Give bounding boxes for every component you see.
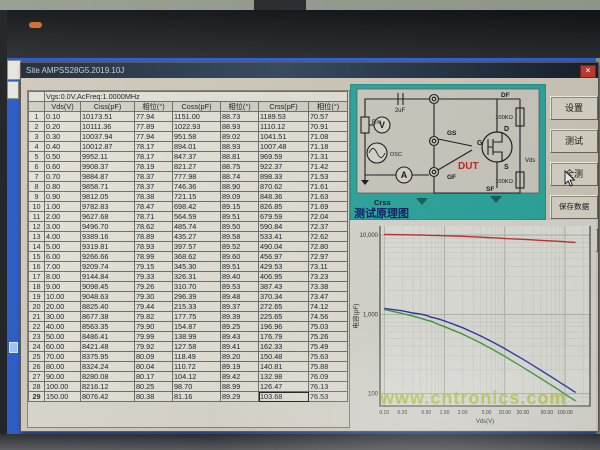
table-row: 101.009782.8378.47698.4289.15826.8571.69: [29, 202, 348, 212]
cell[interactable]: 1110.12: [259, 122, 309, 132]
cell[interactable]: 118.49: [173, 352, 221, 362]
cell[interactable]: 9908.37: [81, 162, 135, 172]
cell[interactable]: 8825.40: [81, 302, 135, 312]
table-row: 50.509952.1178.17847.3788.81969.5971.31: [29, 152, 348, 162]
background-window-fragment: [7, 60, 21, 80]
cell[interactable]: 71.31: [309, 152, 348, 162]
table-row: 134.009389.1678.89435.2789.58533.4172.62: [29, 232, 348, 242]
cell[interactable]: 80.00: [45, 362, 81, 372]
cell[interactable]: 9812.05: [81, 192, 135, 202]
mosfet-icon: [482, 132, 512, 162]
cell[interactable]: 60.00: [45, 342, 81, 352]
cell[interactable]: 89.50: [221, 222, 259, 232]
cell[interactable]: 10.00: [45, 292, 81, 302]
cell[interactable]: 8324.24: [81, 362, 135, 372]
cell[interactable]: 0.30: [45, 132, 81, 142]
cell[interactable]: 296.39: [173, 292, 221, 302]
settings-button[interactable]: 设置: [550, 96, 598, 120]
desktop-icon: [9, 342, 18, 353]
y-tick-label: 10,000: [360, 233, 379, 239]
cell[interactable]: 89.58: [221, 232, 259, 242]
window-content: Vgs:0.0V,AcFreq:1.0000MHz Vds(V) Ciss(pF…: [21, 78, 598, 431]
cell[interactable]: 73.23: [309, 272, 348, 282]
cell[interactable]: 98.70: [173, 382, 221, 392]
cell[interactable]: 9858.71: [81, 182, 135, 192]
cell[interactable]: 70.91: [309, 122, 348, 132]
cell[interactable]: 72.62: [309, 232, 348, 242]
cell[interactable]: 9209.74: [81, 262, 135, 272]
cell[interactable]: 345.30: [173, 262, 221, 272]
cell[interactable]: 9048.63: [81, 292, 135, 302]
cell[interactable]: 72.37: [309, 222, 348, 232]
cell[interactable]: 73.11: [309, 262, 348, 272]
cell[interactable]: 162.33: [259, 342, 309, 352]
cell[interactable]: 78.19: [135, 162, 173, 172]
row-number[interactable]: 14: [29, 242, 45, 252]
cell[interactable]: 50.00: [45, 332, 81, 342]
cell[interactable]: 150.48: [259, 352, 309, 362]
cell[interactable]: 80.04: [135, 362, 173, 372]
close-button[interactable]: ×: [580, 65, 596, 78]
cell[interactable]: 79.33: [135, 272, 173, 282]
cell[interactable]: 898.33: [259, 172, 309, 182]
cell[interactable]: 126.47: [259, 382, 309, 392]
cell[interactable]: 0.40: [45, 142, 81, 152]
cell[interactable]: 150.00: [45, 392, 81, 402]
table-row: 112.009627.6878.71564.5989.51679.5972.04: [29, 212, 348, 222]
table-banner-row: Vgs:0.0V,AcFreq:1.0000MHz: [29, 92, 348, 102]
cell[interactable]: 78.17: [135, 142, 173, 152]
row-number[interactable]: 29: [29, 392, 45, 402]
cell[interactable]: 80.09: [135, 352, 173, 362]
table-row: 2130.008677.3879.82177.7589.39225.6574.5…: [29, 312, 348, 322]
cell[interactable]: 9627.68: [81, 212, 135, 222]
cell[interactable]: 88.75: [221, 162, 259, 172]
cell[interactable]: 89.29: [221, 392, 259, 402]
cell[interactable]: 132.98: [259, 372, 309, 382]
cell[interactable]: 8421.48: [81, 342, 135, 352]
cell[interactable]: 76.13: [309, 382, 348, 392]
x-tick-label: 50.00: [541, 410, 554, 416]
bnc-connector-icon: [430, 95, 439, 104]
cell[interactable]: 77.89: [135, 122, 173, 132]
cell[interactable]: 2.00: [45, 212, 81, 222]
cell[interactable]: 75.49: [309, 342, 348, 352]
test-all-button[interactable]: 全测: [550, 162, 598, 186]
label-gf: GF: [447, 174, 456, 181]
cell[interactable]: 104.12: [173, 372, 221, 382]
cell[interactable]: 89.41: [221, 342, 259, 352]
row-number[interactable]: 28: [29, 382, 45, 392]
cell[interactable]: 177.75: [173, 312, 221, 322]
table-row: 30.3010037.9477.94951.5889.021041.5171.0…: [29, 132, 348, 142]
row-number[interactable]: 11: [29, 212, 45, 222]
table-row: 2460.008421.4879.92127.5889.41162.3375.4…: [29, 342, 348, 352]
cell[interactable]: 969.59: [259, 152, 309, 162]
table-body: 10.1010173.5177.941151.0088.731189.5370.…: [29, 112, 348, 402]
cell[interactable]: 0.60: [45, 162, 81, 172]
cell[interactable]: 79.26: [135, 282, 173, 292]
column-header: 相位(°): [309, 102, 348, 112]
cell[interactable]: 8563.35: [81, 322, 135, 332]
cell[interactable]: 9389.16: [81, 232, 135, 242]
table-row: 145.009319.8178.93397.5789.52490.0472.80: [29, 242, 348, 252]
cell[interactable]: 89.20: [221, 352, 259, 362]
measurement-table-panel: Vgs:0.0V,AcFreq:1.0000MHz Vds(V) Ciss(pF…: [27, 90, 350, 428]
row-number[interactable]: 17: [29, 272, 45, 282]
cell[interactable]: 78.47: [135, 202, 173, 212]
cell[interactable]: 88.99: [221, 382, 259, 392]
x-tick-label: 20.00: [517, 410, 530, 416]
x-tick-label: 0.50: [421, 410, 431, 416]
cell[interactable]: 75.03: [309, 322, 348, 332]
label-a: A: [401, 170, 408, 180]
label-df: DF: [501, 92, 510, 99]
row-number[interactable]: 6: [29, 162, 45, 172]
cell[interactable]: 88.93: [221, 142, 259, 152]
cell[interactable]: 721.15: [173, 192, 221, 202]
cell[interactable]: 70.00: [45, 352, 81, 362]
cell[interactable]: 78.93: [135, 242, 173, 252]
cell[interactable]: 0.70: [45, 172, 81, 182]
cell[interactable]: 79.44: [135, 302, 173, 312]
cell[interactable]: 826.85: [259, 202, 309, 212]
cell[interactable]: 1.00: [45, 202, 81, 212]
cell[interactable]: 73.38: [309, 282, 348, 292]
row-number[interactable]: 8: [29, 182, 45, 192]
cell[interactable]: 88.93: [221, 122, 259, 132]
row-number[interactable]: 3: [29, 132, 45, 142]
y-tick-label: 100: [368, 392, 379, 398]
cell[interactable]: 140.81: [259, 362, 309, 372]
cell[interactable]: 78.37: [135, 172, 173, 182]
cell[interactable]: 8280.08: [81, 372, 135, 382]
cell[interactable]: 9319.81: [81, 242, 135, 252]
cell[interactable]: 4.00: [45, 232, 81, 242]
cell[interactable]: 71.63: [309, 192, 348, 202]
table-row: 2790.008280.0880.17104.1289.42132.9876.0…: [29, 372, 348, 382]
row-number[interactable]: 1: [29, 112, 45, 122]
x-tick-label: 10.00: [498, 410, 511, 416]
cell[interactable]: 397.57: [173, 242, 221, 252]
cell[interactable]: 821.27: [173, 162, 221, 172]
cell[interactable]: 88.73: [221, 112, 259, 122]
row-number[interactable]: 13: [29, 232, 45, 242]
cell[interactable]: 75.26: [309, 332, 348, 342]
background-window-fragment: [7, 81, 19, 99]
table-row: 156.009266.6678.99368.6289.60456.9772.97: [29, 252, 348, 262]
cell[interactable]: 78.71: [135, 212, 173, 222]
cell[interactable]: 71.53: [309, 172, 348, 182]
row-number[interactable]: 22: [29, 322, 45, 332]
label-100k-bottom: 100KΩ: [495, 179, 514, 185]
cell[interactable]: 81.16: [173, 392, 221, 402]
test-button[interactable]: 测试: [550, 129, 598, 153]
cell[interactable]: 72.04: [309, 212, 348, 222]
cell[interactable]: 75.63: [309, 352, 348, 362]
cell[interactable]: 10173.51: [81, 112, 135, 122]
cell[interactable]: 110.72: [173, 362, 221, 372]
cell[interactable]: 8486.41: [81, 332, 135, 342]
cell[interactable]: 79.15: [135, 262, 173, 272]
cell[interactable]: 1041.51: [259, 132, 309, 142]
cell[interactable]: 88.74: [221, 172, 259, 182]
cell[interactable]: 9266.66: [81, 252, 135, 262]
row-number[interactable]: 27: [29, 372, 45, 382]
cell[interactable]: 0.50: [45, 152, 81, 162]
cell[interactable]: 196.96: [259, 322, 309, 332]
x-tick-label: 0.10: [379, 410, 389, 416]
cell[interactable]: 698.42: [173, 202, 221, 212]
cell[interactable]: 71.61: [309, 182, 348, 192]
table-row: 29150.008076.4280.3881.1689.29103.6876.5…: [29, 392, 348, 402]
row-number[interactable]: 5: [29, 152, 45, 162]
cell[interactable]: 79.92: [135, 342, 173, 352]
cell[interactable]: 9144.84: [81, 272, 135, 282]
cell[interactable]: 77.94: [135, 132, 173, 142]
cell[interactable]: 847.37: [173, 152, 221, 162]
cell[interactable]: 8677.38: [81, 312, 135, 322]
cell[interactable]: 103.68: [259, 392, 309, 402]
cell[interactable]: 9782.83: [81, 202, 135, 212]
cell[interactable]: 5.00: [45, 242, 81, 252]
monitor-bezel-left: [0, 10, 7, 450]
cell[interactable]: 78.99: [135, 252, 173, 262]
row-number[interactable]: 26: [29, 362, 45, 372]
cell[interactable]: 1007.48: [259, 142, 309, 152]
save-data-button[interactable]: 保存数据: [550, 195, 598, 219]
cell[interactable]: 0.80: [45, 182, 81, 192]
cell[interactable]: 89.15: [221, 202, 259, 212]
cell[interactable]: 138.99: [173, 332, 221, 342]
cell[interactable]: 10037.94: [81, 132, 135, 142]
capacitance-chart: 10,0001,0001000.100.200.501.002.005.0010…: [350, 220, 596, 430]
cell[interactable]: 76.53: [309, 392, 348, 402]
cell[interactable]: 7.00: [45, 262, 81, 272]
cell[interactable]: 8216.12: [81, 382, 135, 392]
cell[interactable]: 9884.87: [81, 172, 135, 182]
cell[interactable]: 74.56: [309, 312, 348, 322]
row-number[interactable]: 10: [29, 202, 45, 212]
cell[interactable]: 88.81: [221, 152, 259, 162]
monitor-bezel-top: [0, 10, 600, 58]
label-gs: GS: [447, 130, 457, 137]
monitor-bezel-bottom: [0, 434, 600, 450]
row-number[interactable]: 9: [29, 192, 45, 202]
row-number[interactable]: 20: [29, 302, 45, 312]
cell[interactable]: 71.08: [309, 132, 348, 142]
column-header: Crss(pF): [259, 102, 309, 112]
cell[interactable]: 310.70: [173, 282, 221, 292]
cell[interactable]: 1022.93: [173, 122, 221, 132]
cell[interactable]: 1151.00: [173, 112, 221, 122]
cell[interactable]: 78.89: [135, 232, 173, 242]
cell[interactable]: 89.37: [221, 302, 259, 312]
cell[interactable]: 89.48: [221, 292, 259, 302]
column-header: 相位(°): [221, 102, 259, 112]
table-row: 80.809858.7178.37746.3688.90870.6271.61: [29, 182, 348, 192]
table-row: 20.2010111.3677.891022.9388.931110.1270.…: [29, 122, 348, 132]
cell[interactable]: 20.00: [45, 302, 81, 312]
cell[interactable]: 89.19: [221, 362, 259, 372]
cell[interactable]: 429.53: [259, 262, 309, 272]
cell[interactable]: 870.62: [259, 182, 309, 192]
cell[interactable]: 9496.70: [81, 222, 135, 232]
x-tick-label: 5.00: [482, 410, 492, 416]
cell[interactable]: 368.62: [173, 252, 221, 262]
table-row: 2570.008375.9580.09118.4989.20150.4875.6…: [29, 352, 348, 362]
cell[interactable]: 75.88: [309, 362, 348, 372]
label-g: G: [477, 140, 483, 147]
cell[interactable]: 951.58: [173, 132, 221, 142]
cell[interactable]: 456.97: [259, 252, 309, 262]
cell[interactable]: 8375.95: [81, 352, 135, 362]
cell[interactable]: 533.41: [259, 232, 309, 242]
table-row: 123.009496.7078.62485.7489.50590.8472.37: [29, 222, 348, 232]
cell[interactable]: 0.90: [45, 192, 81, 202]
cell[interactable]: 127.58: [173, 342, 221, 352]
measurement-table: Vgs:0.0V,AcFreq:1.0000MHz Vds(V) Ciss(pF…: [28, 91, 348, 402]
cell[interactable]: 74.12: [309, 302, 348, 312]
title-bar[interactable]: Site AMPSS28G5.2019.10J ×: [21, 63, 598, 78]
row-number[interactable]: 18: [29, 282, 45, 292]
cell[interactable]: 79.99: [135, 332, 173, 342]
cell[interactable]: 89.53: [221, 282, 259, 292]
cell[interactable]: 6.00: [45, 252, 81, 262]
cell[interactable]: 0.20: [45, 122, 81, 132]
cell[interactable]: 88.90: [221, 182, 259, 192]
table-row: 189.009098.4579.26310.7089.53387.4373.38: [29, 282, 348, 292]
cell[interactable]: 215.33: [173, 302, 221, 312]
cell[interactable]: 894.01: [173, 142, 221, 152]
cell[interactable]: 9.00: [45, 282, 81, 292]
cell[interactable]: 89.25: [221, 322, 259, 332]
cell[interactable]: 89.40: [221, 272, 259, 282]
cell[interactable]: 70.57: [309, 112, 348, 122]
cell[interactable]: 89.02: [221, 132, 259, 142]
row-number[interactable]: 15: [29, 252, 45, 262]
cell[interactable]: 78.62: [135, 222, 173, 232]
cell[interactable]: 326.31: [173, 272, 221, 282]
cell[interactable]: 225.65: [259, 312, 309, 322]
cell[interactable]: 9952.11: [81, 152, 135, 162]
right-panel: Rm 2uF V OSC A GS GF DF SF D G S: [348, 78, 598, 431]
cell[interactable]: 71.18: [309, 142, 348, 152]
cell[interactable]: 406.95: [259, 272, 309, 282]
label-d: D: [504, 126, 509, 133]
cell[interactable]: 9098.45: [81, 282, 135, 292]
table-row: 2240.008563.3579.90154.8789.25196.9675.0…: [29, 322, 348, 332]
column-header: Vds(V): [45, 102, 81, 112]
cell[interactable]: 89.52: [221, 242, 259, 252]
chart-svg: 10,0001,0001000.100.200.501.002.005.0010…: [350, 220, 596, 430]
row-number[interactable]: 19: [29, 292, 45, 302]
cell[interactable]: 777.98: [173, 172, 221, 182]
diagram-caption: 测试原理图: [354, 206, 409, 220]
cell[interactable]: 80.38: [135, 392, 173, 402]
cell[interactable]: 746.36: [173, 182, 221, 192]
cell[interactable]: 100.00: [45, 382, 81, 392]
cell[interactable]: 485.74: [173, 222, 221, 232]
cell[interactable]: 79.90: [135, 322, 173, 332]
cell[interactable]: 176.79: [259, 332, 309, 342]
cell[interactable]: 1189.53: [259, 112, 309, 122]
cell[interactable]: 564.59: [173, 212, 221, 222]
cell[interactable]: 89.09: [221, 192, 259, 202]
cell[interactable]: 72.97: [309, 252, 348, 262]
table-row: 178.009144.8479.33326.3189.40406.9573.23: [29, 272, 348, 282]
row-number[interactable]: 23: [29, 332, 45, 342]
cell[interactable]: 80.17: [135, 372, 173, 382]
cell[interactable]: 8076.42: [81, 392, 135, 402]
cell[interactable]: 848.36: [259, 192, 309, 202]
table-row: 2680.008324.2480.04110.7289.19140.8175.8…: [29, 362, 348, 372]
cell[interactable]: 8.00: [45, 272, 81, 282]
app-window: Site AMPSS28G5.2019.10J × Vgs:: [20, 62, 599, 432]
cell[interactable]: 80.25: [135, 382, 173, 392]
cell[interactable]: 89.39: [221, 312, 259, 322]
cell[interactable]: 679.59: [259, 212, 309, 222]
row-number[interactable]: 21: [29, 312, 45, 322]
cell[interactable]: 90.00: [45, 372, 81, 382]
cell[interactable]: 89.51: [221, 212, 259, 222]
cell[interactable]: 89.60: [221, 252, 259, 262]
row-number[interactable]: 24: [29, 342, 45, 352]
column-header: Coss(pF): [173, 102, 221, 112]
cell[interactable]: 78.38: [135, 192, 173, 202]
row-number[interactable]: 25: [29, 352, 45, 362]
cell[interactable]: 590.84: [259, 222, 309, 232]
cell[interactable]: 0.10: [45, 112, 81, 122]
cell[interactable]: 490.04: [259, 242, 309, 252]
row-number[interactable]: 7: [29, 172, 45, 182]
row-number[interactable]: 2: [29, 122, 45, 132]
cell[interactable]: 89.42: [221, 372, 259, 382]
cell[interactable]: 10111.36: [81, 122, 135, 132]
cell[interactable]: 79.82: [135, 312, 173, 322]
cell[interactable]: 79.30: [135, 292, 173, 302]
cell[interactable]: 3.00: [45, 222, 81, 232]
bnc-connector-icon: [430, 137, 439, 146]
cell[interactable]: 76.09: [309, 372, 348, 382]
x-tick-label: 2.00: [458, 410, 468, 416]
cell[interactable]: 78.37: [135, 182, 173, 192]
cell[interactable]: 71.69: [309, 202, 348, 212]
cell[interactable]: 154.87: [173, 322, 221, 332]
row-number[interactable]: 4: [29, 142, 45, 152]
label-crss-mode: Crss: [374, 198, 391, 207]
cell[interactable]: 89.43: [221, 332, 259, 342]
row-number[interactable]: 16: [29, 262, 45, 272]
cell[interactable]: 78.17: [135, 152, 173, 162]
label-v: V: [379, 120, 385, 130]
row-number[interactable]: 12: [29, 222, 45, 232]
cell[interactable]: 435.27: [173, 232, 221, 242]
cell[interactable]: 922.37: [259, 162, 309, 172]
cell[interactable]: 71.42: [309, 162, 348, 172]
cell[interactable]: 10012.87: [81, 142, 135, 152]
cell[interactable]: 272.65: [259, 302, 309, 312]
cell[interactable]: 77.94: [135, 112, 173, 122]
cell[interactable]: 30.00: [45, 312, 81, 322]
cell[interactable]: 40.00: [45, 322, 81, 332]
cell[interactable]: 72.80: [309, 242, 348, 252]
cell[interactable]: 387.43: [259, 282, 309, 292]
cell[interactable]: 89.51: [221, 262, 259, 272]
gutter-cell: [29, 102, 45, 112]
cell[interactable]: 370.34: [259, 292, 309, 302]
cell[interactable]: 73.47: [309, 292, 348, 302]
